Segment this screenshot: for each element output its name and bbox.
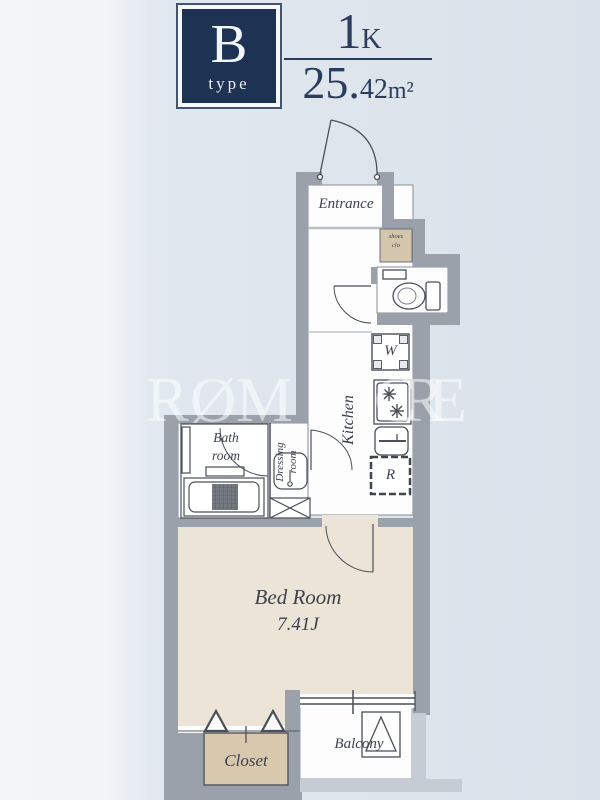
shoes-closet-label: shoes clo <box>380 232 412 250</box>
bedroom-name: Bed Room <box>198 583 398 612</box>
kitchen-unit <box>374 380 411 455</box>
bathroom-label-line2: room <box>188 447 264 465</box>
balcony-label: Balcony <box>303 735 415 755</box>
floorplan-svg <box>0 0 600 800</box>
kitchen-label: Kitchen <box>339 375 359 465</box>
closet-label: Closet <box>204 750 288 772</box>
bedroom-size: 7.41J <box>198 612 398 639</box>
fridge-label: R <box>371 466 410 486</box>
shoes-closet-label-line2: clo <box>380 241 412 250</box>
dressing-room-label-line1: Dressing <box>274 426 287 498</box>
shoes-closet-label-line1: shoes <box>380 232 412 241</box>
dressing-room-label-line2: room <box>287 426 300 498</box>
bathroom-label-line1: Bath <box>188 429 264 447</box>
entrance-label: Entrance <box>306 195 386 215</box>
bedroom-label: Bed Room 7.41J <box>198 583 398 639</box>
floorplan-page: B type 1K 25.42m² <box>0 0 600 800</box>
washer-label: W <box>372 342 409 362</box>
dressing-room-label: Dressing room <box>274 426 302 498</box>
bathroom-label: Bath room <box>188 429 264 464</box>
